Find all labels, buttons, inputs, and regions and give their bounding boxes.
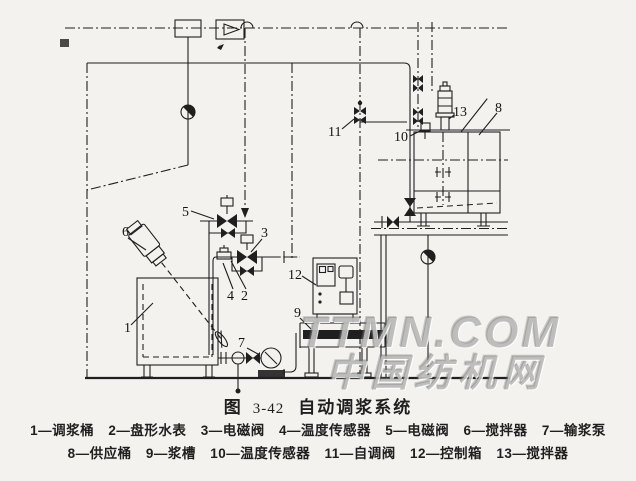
legend-item-9: 9—浆槽 (146, 446, 196, 461)
part-label-4: 4 (227, 289, 234, 304)
part-label-1: 1 (124, 321, 131, 336)
legend-item-11: 11—自调阀 (324, 446, 395, 461)
part-label-7: 7 (238, 336, 245, 351)
legend-row-2: 8—供应桶 9—浆槽 10—温度传感器 11—自调阀 12—控制箱 13—搅拌器 (0, 442, 636, 462)
legend-item-7: 7—输浆泵 (542, 423, 606, 438)
agitator-motor-13 (436, 82, 454, 130)
legend-item-4: 4—温度传感器 (279, 423, 371, 438)
slurry-trough-9 (284, 323, 385, 377)
steam-drop-lines (413, 22, 432, 130)
legend-item-5: 5—电磁阀 (385, 423, 449, 438)
barrel-outlet-valves (371, 198, 508, 378)
figure-title: 自动调浆系统 (298, 398, 412, 417)
part-label-13: 13 (453, 105, 467, 120)
figure-caption: 图3-42自动调浆系统 (0, 393, 636, 418)
scanned-page: 1 2 3 4 5 6 7 8 9 10 11 12 13 TTMN.COM 中… (0, 0, 636, 481)
part-label-11: 11 (328, 125, 341, 140)
caption-prefix: 图 (224, 398, 243, 417)
legend-item-6: 6—搅拌器 (464, 423, 528, 438)
feed-line-valve5 (241, 28, 249, 218)
part-label-10: 10 (394, 130, 408, 145)
water-meter-drop (181, 37, 195, 165)
part-labels: 1 2 3 4 5 6 7 8 9 10 11 12 13 (122, 101, 502, 354)
legend-row-1: 1—调浆桶 2—盘形水表 3—电磁阀 4—温度传感器 5—电磁阀 6—搅拌器 7… (0, 419, 636, 439)
figure-number: 3-42 (253, 401, 285, 417)
top-main-line (65, 22, 510, 28)
down-arrow-icon (241, 208, 249, 218)
part-label-2: 2 (241, 289, 248, 304)
legend-item-12: 12—控制箱 (410, 446, 482, 461)
pressure-valve-symbol (216, 20, 244, 50)
legend-item-8: 8—供应桶 (68, 446, 132, 461)
part-label-5: 5 (182, 205, 189, 220)
temp-sensor-10 (421, 123, 430, 139)
supply-barrel-8 (378, 99, 510, 226)
legend-item-2: 2—盘形水表 (108, 423, 186, 438)
part-label-3: 3 (261, 226, 268, 241)
scan-artifact (60, 39, 69, 47)
legend-item-3: 3—电磁阀 (201, 423, 265, 438)
pump-7-assembly (218, 348, 285, 394)
legend-item-13: 13—搅拌器 (496, 446, 568, 461)
part-label-12: 12 (288, 268, 302, 283)
trough-feed-pipe (299, 66, 333, 322)
part-label-6: 6 (122, 225, 129, 240)
part-label-9: 9 (294, 306, 301, 321)
control-box-12 (313, 258, 357, 323)
legend-item-1: 1—调浆桶 (30, 423, 94, 438)
mixing-barrel-1 (137, 278, 218, 377)
legend-item-10: 10—温度传感器 (210, 446, 310, 461)
